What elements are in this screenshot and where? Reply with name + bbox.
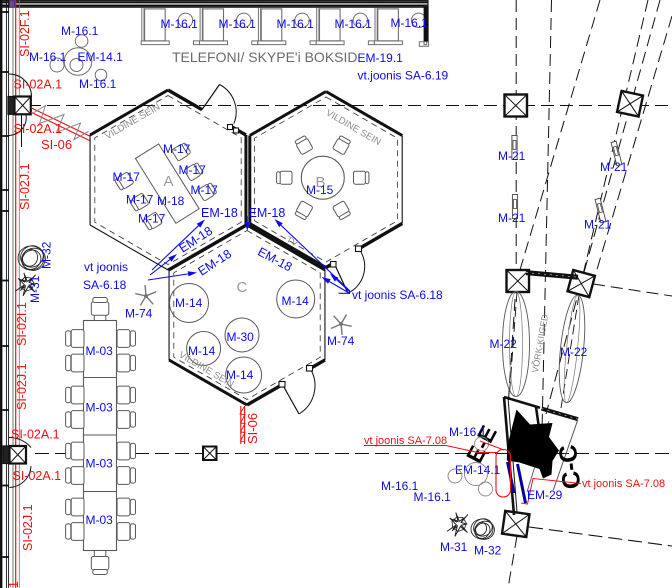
- svg-text:SA-6.18: SA-6.18: [83, 278, 127, 292]
- svg-text:EM-18: EM-18: [201, 206, 238, 220]
- svg-text:M-17: M-17: [138, 212, 166, 226]
- svg-text:A: A: [164, 173, 174, 190]
- svg-text:SI-02F.1: SI-02F.1: [18, 10, 32, 57]
- svg-text:M-16.1: M-16.1: [61, 24, 99, 38]
- svg-text:SI-02I.1: SI-02I.1: [15, 302, 29, 346]
- svg-text:M-17: M-17: [163, 142, 191, 156]
- svg-text:M-15: M-15: [306, 183, 334, 197]
- svg-text:SI-02A.1: SI-02A.1: [11, 428, 60, 442]
- svg-text:M-16.1: M-16.1: [79, 77, 117, 91]
- svg-text:vt joonis SA-6.18: vt joonis SA-6.18: [352, 288, 443, 302]
- svg-text:SI-02A.1: SI-02A.1: [14, 122, 63, 136]
- svg-text:M-03: M-03: [86, 401, 114, 415]
- svg-text:M-21: M-21: [498, 149, 526, 163]
- svg-text:M-03: M-03: [86, 344, 114, 358]
- svg-text:SI-02A.1: SI-02A.1: [13, 469, 62, 483]
- svg-text:M-21: M-21: [600, 160, 628, 174]
- svg-text:vt joonis: vt joonis: [84, 260, 128, 274]
- svg-text:M-22: M-22: [560, 345, 588, 359]
- svg-text:vt joonis SA-7.08: vt joonis SA-7.08: [364, 435, 447, 447]
- svg-text:M-17: M-17: [179, 163, 207, 177]
- svg-text:SI-02A.1: SI-02A.1: [14, 78, 63, 92]
- svg-text:M-03: M-03: [86, 513, 114, 527]
- svg-text:M-30: M-30: [227, 330, 255, 344]
- svg-text:EM-18: EM-18: [249, 206, 286, 220]
- svg-text:vt.joonis SA-6.19: vt.joonis SA-6.19: [358, 69, 449, 83]
- svg-text:SI-06: SI-06: [41, 137, 72, 152]
- svg-text:M-16.1: M-16.1: [335, 17, 373, 31]
- svg-text:M-17: M-17: [126, 193, 154, 207]
- svg-text:M-31: M-31: [440, 540, 468, 554]
- svg-text:M-16.1: M-16.1: [29, 50, 67, 64]
- svg-text:M-18: M-18: [157, 194, 185, 208]
- svg-text:M-16.1: M-16.1: [161, 17, 199, 31]
- svg-text:M-32: M-32: [40, 241, 54, 269]
- svg-text:EM-29: EM-29: [527, 488, 563, 502]
- svg-text:M-16.1: M-16.1: [219, 17, 257, 31]
- svg-text:SI-02J.1: SI-02J.1: [18, 163, 32, 210]
- svg-text:M-16.1: M-16.1: [277, 17, 315, 31]
- svg-text:TELEFONI/ SKYPE'i BOKSID: TELEFONI/ SKYPE'i BOKSID: [172, 49, 358, 65]
- svg-text:M-14: M-14: [282, 294, 310, 308]
- svg-text:M-74: M-74: [327, 334, 355, 348]
- svg-text:M-14: M-14: [175, 296, 203, 310]
- svg-text:M-17: M-17: [191, 183, 219, 197]
- svg-text:EM-14.1: EM-14.1: [78, 50, 124, 64]
- svg-text:M-32: M-32: [474, 544, 502, 558]
- svg-text:SI-02J.1: SI-02J.1: [21, 504, 35, 551]
- svg-text:M-21: M-21: [584, 218, 612, 232]
- svg-text:M-17: M-17: [113, 170, 141, 184]
- svg-text:SI-02J.1: SI-02J.1: [15, 363, 29, 410]
- svg-text:M-03: M-03: [86, 457, 114, 471]
- svg-text:1: 1: [7, 581, 21, 588]
- svg-text:M-21: M-21: [498, 211, 526, 225]
- svg-text:M-14: M-14: [226, 368, 254, 382]
- svg-text:M-14: M-14: [188, 344, 216, 358]
- svg-text:M-74: M-74: [125, 307, 153, 321]
- svg-text:vt joonis SA-7.08: vt joonis SA-7.08: [582, 478, 665, 490]
- svg-text:C: C: [237, 279, 248, 296]
- svg-text:M-31: M-31: [28, 275, 42, 303]
- svg-text:M-22: M-22: [490, 337, 518, 351]
- svg-text:M-16.1: M-16.1: [414, 490, 452, 504]
- svg-text:EM-19.1: EM-19.1: [358, 51, 404, 65]
- svg-text:M-16.1: M-16.1: [391, 16, 429, 30]
- svg-text:SI-06: SI-06: [245, 413, 260, 444]
